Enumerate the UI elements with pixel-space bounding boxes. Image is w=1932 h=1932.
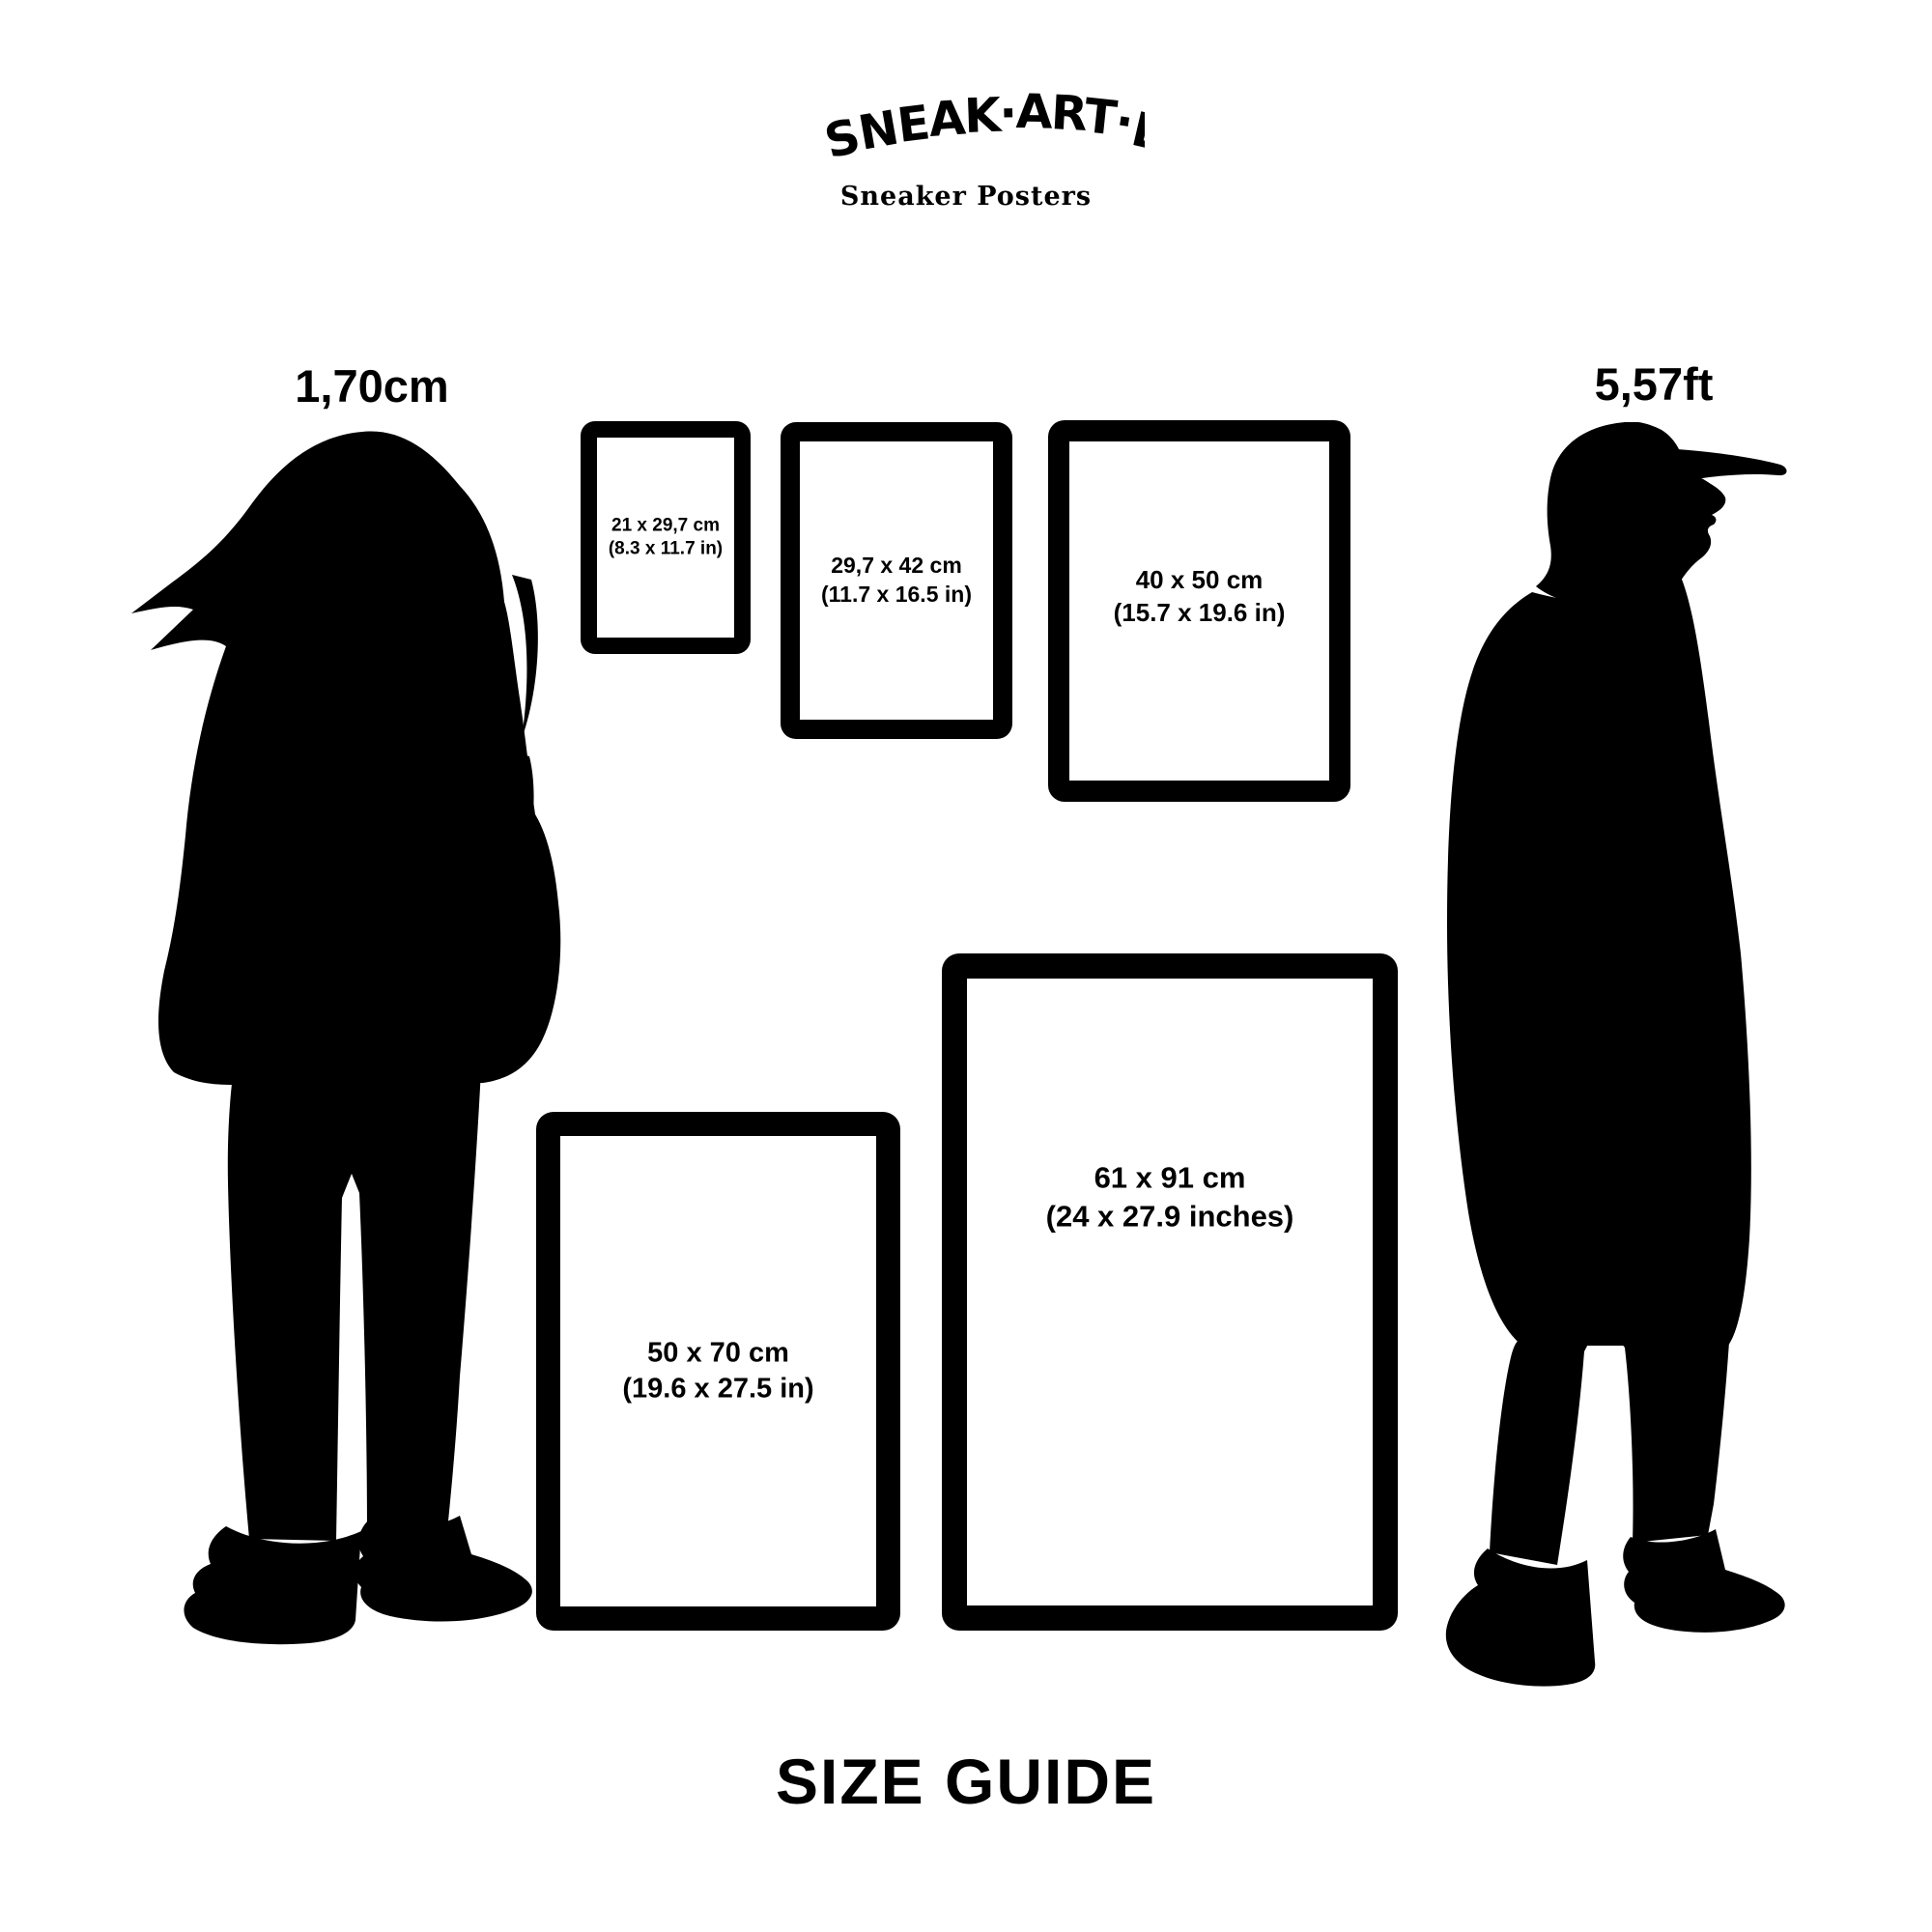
- poster-frame-29x42: 29,7 x 42 cm (11.7 x 16.5 in): [781, 422, 1012, 739]
- frame-size-in: (15.7 x 19.6 in): [1069, 597, 1329, 630]
- poster-frame-21x29: 21 x 29,7 cm (8.3 x 11.7 in): [581, 421, 751, 654]
- frame-size-cm: 61 x 91 cm: [967, 1159, 1373, 1198]
- size-guide-page: SNEAK·ART·EL Sneaker Posters 1,70cm 5,57…: [0, 0, 1932, 1932]
- frame-size-in: (11.7 x 16.5 in): [800, 581, 993, 610]
- frame-size-in: (8.3 x 11.7 in): [597, 538, 734, 562]
- poster-frame-61x91: 61 x 91 cm (24 x 27.9 inches): [942, 953, 1398, 1631]
- page-title: SIZE GUIDE: [580, 1745, 1352, 1818]
- man-silhouette-shape: [1446, 422, 1787, 1687]
- frame-size-cm: 29,7 x 42 cm: [800, 552, 993, 581]
- woman-silhouette: [126, 430, 580, 1647]
- frame-size-in: (19.6 x 27.5 in): [560, 1372, 876, 1408]
- frame-size-cm: 21 x 29,7 cm: [597, 514, 734, 538]
- woman-height-label: 1,70cm: [227, 359, 517, 412]
- woman-silhouette-shape: [131, 431, 560, 1644]
- brand-logo: SNEAK·ART·EL: [816, 50, 1145, 195]
- brand-logo-text: SNEAK·ART·EL: [819, 84, 1145, 173]
- poster-frame-50x70: 50 x 70 cm (19.6 x 27.5 in): [536, 1112, 900, 1631]
- frame-size-label: 50 x 70 cm (19.6 x 27.5 in): [560, 1335, 876, 1407]
- frame-size-label: 61 x 91 cm (24 x 27.9 inches): [967, 1159, 1373, 1237]
- frame-size-cm: 50 x 70 cm: [560, 1335, 876, 1372]
- frame-size-in: (24 x 27.9 inches): [967, 1198, 1373, 1236]
- frame-size-label: 40 x 50 cm (15.7 x 19.6 in): [1069, 565, 1329, 631]
- frame-size-label: 29,7 x 42 cm (11.7 x 16.5 in): [800, 552, 993, 610]
- man-silhouette: [1439, 422, 1826, 1702]
- frame-size-label: 21 x 29,7 cm (8.3 x 11.7 in): [597, 514, 734, 561]
- brand-tagline: Sneaker Posters: [773, 182, 1159, 212]
- frame-size-cm: 40 x 50 cm: [1069, 565, 1329, 598]
- man-height-label: 5,57ft: [1509, 357, 1799, 411]
- poster-frame-40x50: 40 x 50 cm (15.7 x 19.6 in): [1048, 420, 1350, 802]
